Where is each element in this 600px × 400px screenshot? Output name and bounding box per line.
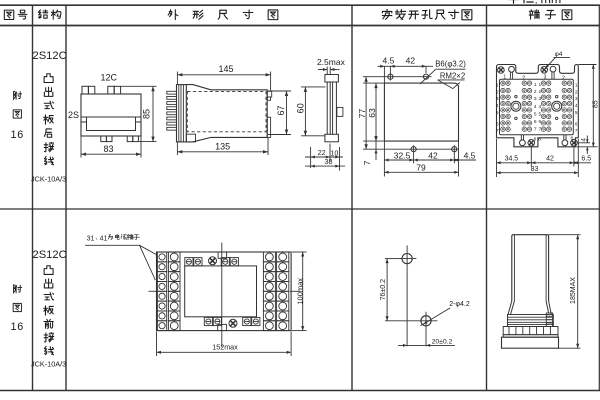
svg-text:60: 60 <box>296 103 306 113</box>
svg-text:6: 6 <box>534 119 537 125</box>
svg-text:2: 2 <box>575 90 578 95</box>
svg-text:3: 3 <box>544 75 547 81</box>
svg-text:85: 85 <box>593 100 600 108</box>
svg-text:1: 1 <box>503 74 506 80</box>
svg-text:7: 7 <box>538 127 541 133</box>
svg-text:16: 16 <box>10 129 24 141</box>
svg-text:2.5max: 2.5max <box>317 57 346 67</box>
svg-text:67: 67 <box>276 105 286 115</box>
svg-text:79: 79 <box>416 162 426 172</box>
svg-text:85: 85 <box>142 109 152 119</box>
svg-text:4: 4 <box>534 104 537 110</box>
svg-text:6: 6 <box>538 119 541 125</box>
svg-text:B6(φ3.2): B6(φ3.2) <box>435 60 466 69</box>
svg-text:20±0.2: 20±0.2 <box>432 338 453 345</box>
svg-text:3: 3 <box>575 96 578 101</box>
svg-text:1: 1 <box>575 83 578 88</box>
svg-text:2S12C: 2S12C <box>32 50 66 62</box>
svg-text:41: 41 <box>100 235 108 242</box>
svg-text:7: 7 <box>534 127 537 133</box>
svg-text:3: 3 <box>496 96 499 101</box>
svg-text:6: 6 <box>575 121 578 126</box>
svg-text:77: 77 <box>357 109 367 119</box>
svg-text:3: 3 <box>534 96 537 102</box>
svg-text:4: 4 <box>581 138 588 142</box>
svg-text:5: 5 <box>575 110 578 115</box>
svg-text:22: 22 <box>318 148 326 157</box>
svg-text:2-φ4.2: 2-φ4.2 <box>449 301 470 308</box>
svg-text:42: 42 <box>546 156 554 163</box>
svg-text:10: 10 <box>330 148 338 157</box>
svg-text:2: 2 <box>534 89 537 95</box>
svg-text:2S12C: 2S12C <box>32 249 66 261</box>
svg-text:38: 38 <box>325 157 333 166</box>
svg-text:6.5: 6.5 <box>581 156 591 163</box>
svg-text:12C: 12C <box>100 73 117 83</box>
svg-text:1: 1 <box>496 83 499 88</box>
svg-text:83: 83 <box>103 144 113 154</box>
svg-text:2: 2 <box>496 90 499 95</box>
svg-text:2S: 2S <box>68 110 79 120</box>
svg-text:8: 8 <box>571 135 574 140</box>
svg-text:4: 4 <box>496 103 499 108</box>
svg-text:42: 42 <box>406 55 416 65</box>
svg-text:4: 4 <box>575 103 578 108</box>
svg-text:1: 1 <box>538 82 541 88</box>
svg-text:7: 7 <box>362 160 372 165</box>
svg-text:135: 135 <box>215 141 230 151</box>
svg-text:31: 31 <box>87 235 95 242</box>
svg-text:2: 2 <box>522 75 525 81</box>
svg-text:4.5: 4.5 <box>464 150 476 160</box>
svg-text:63: 63 <box>367 108 377 118</box>
svg-text:JCK-10A/3: JCK-10A/3 <box>31 359 66 368</box>
svg-text:4: 4 <box>538 104 541 110</box>
svg-text:32.5: 32.5 <box>394 150 411 160</box>
svg-text:16: 16 <box>10 321 24 333</box>
svg-text:5: 5 <box>534 111 537 117</box>
svg-text:185MAX: 185MAX <box>570 277 577 304</box>
svg-text:34.5: 34.5 <box>505 156 519 163</box>
svg-text:5: 5 <box>538 111 541 117</box>
svg-text:145: 145 <box>218 64 233 74</box>
svg-text:100max: 100max <box>295 278 304 305</box>
svg-text:152max: 152max <box>212 342 238 351</box>
svg-text:83: 83 <box>531 166 539 173</box>
svg-text:2: 2 <box>538 89 541 95</box>
svg-text:42: 42 <box>428 150 438 160</box>
svg-text:5: 5 <box>496 110 499 115</box>
svg-text:76±0.2: 76±0.2 <box>380 279 387 300</box>
svg-text:RM2×2: RM2×2 <box>440 72 465 81</box>
svg-text:8: 8 <box>534 137 537 142</box>
svg-text:1: 1 <box>534 82 537 88</box>
svg-text:2: 2 <box>562 75 565 81</box>
svg-text:JCK-10A/3: JCK-10A/3 <box>31 174 66 183</box>
svg-text:7: 7 <box>575 128 578 133</box>
svg-text:6: 6 <box>496 121 499 126</box>
svg-text:4.5: 4.5 <box>382 55 394 65</box>
svg-text:7: 7 <box>496 128 499 133</box>
svg-text:8: 8 <box>538 137 541 142</box>
svg-text:3: 3 <box>538 96 541 102</box>
